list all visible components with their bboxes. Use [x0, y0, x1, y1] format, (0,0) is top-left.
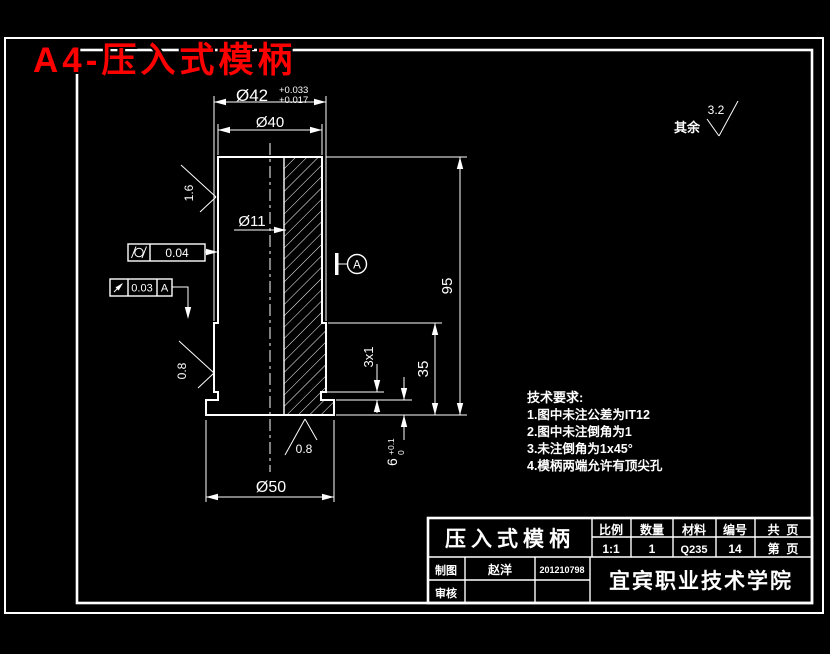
datum-a-symbol: A: [335, 253, 367, 275]
dim-h6-tol-lower: 0: [396, 450, 406, 455]
dim-arrow: [432, 403, 438, 415]
header-material: 材料: [681, 522, 706, 537]
header-total-pages: 共 页: [768, 522, 799, 537]
dim-d42-tol-lower: +0.017: [279, 95, 308, 106]
gdt-runout-frame: 0.03 A: [110, 279, 191, 319]
tech-requirement-item: 1.图中未注公差为IT12: [527, 407, 650, 422]
dim-arrow: [401, 415, 407, 427]
dim-d42-label: Ø42: [236, 86, 268, 105]
dim-h35: 35: [328, 323, 442, 415]
dim-h95: 95: [326, 157, 467, 415]
dim-arrow: [310, 127, 322, 133]
tech-requirements-title: 技术要求:: [527, 390, 583, 405]
dim-d40-label: Ø40: [256, 114, 284, 131]
dim-h6-tol-upper: +0.1: [386, 438, 396, 455]
leader-arrow: [185, 307, 191, 319]
header-quantity: 数量: [640, 522, 664, 537]
dim-arrow: [432, 323, 438, 335]
dim-arrow: [322, 494, 334, 500]
value-scale: 1:1: [602, 542, 620, 556]
roughness-side-upper: 1.6: [181, 165, 216, 212]
dim-d11: Ø11: [234, 213, 286, 233]
roughness-side-lower-value: 0.8: [175, 362, 189, 379]
value-material: Q235: [681, 544, 708, 556]
value-page: 第 页: [768, 541, 799, 556]
roughness-side-upper-value: 1.6: [182, 184, 196, 201]
roughness-general-value: 3.2: [708, 103, 725, 117]
gdt-runout-value: 0.03: [131, 283, 152, 295]
part-view: [206, 143, 334, 472]
dim-arrow: [374, 400, 380, 412]
dim-d11-label: Ø11: [238, 213, 265, 230]
dim-arrow: [374, 380, 380, 392]
value-quantity: 1: [649, 542, 656, 556]
roughness-bottom-value: 0.8: [296, 442, 313, 456]
header-scale: 比例: [599, 522, 623, 537]
dim-arrow: [457, 403, 463, 415]
title-block-part-name: 压入式模柄: [445, 527, 575, 551]
value-drawn-number: 201210798: [539, 565, 584, 575]
dim-arrow: [401, 388, 407, 400]
runout-icon: [114, 281, 125, 292]
dim-groove-label: 3x1: [361, 347, 376, 368]
header-number: 编号: [722, 522, 747, 537]
tech-requirement-item: 4.模柄两端允许有顶尖孔: [527, 458, 663, 473]
dim-arrow: [214, 99, 226, 105]
tech-requirements: 技术要求: 1.图中未注公差为IT12 2.图中未注倒角为1 3.未注倒角为1x…: [527, 390, 663, 473]
dim-arrow: [206, 494, 218, 500]
tech-requirement-item: 3.未注倒角为1x45°: [527, 441, 633, 456]
gdt-cylindricity-value: 0.04: [165, 246, 189, 260]
datum-bar: [335, 253, 339, 275]
roughness-general: 其余 3.2: [674, 101, 738, 136]
roughness-side-lower: 0.8: [175, 341, 214, 388]
page-title: A4-压入式模柄: [33, 41, 296, 80]
dim-arrow: [218, 127, 230, 133]
inner-frame: [77, 50, 812, 603]
dim-arrow: [314, 99, 326, 105]
cylindricity-icon: [132, 247, 147, 259]
datum-a-label: A: [353, 260, 361, 272]
roughness-others-label: 其余: [674, 120, 701, 135]
value-number: 14: [728, 542, 742, 556]
dim-h6-label: 6: [384, 458, 400, 466]
dim-d50-label: Ø50: [256, 479, 286, 496]
dim-arrow: [457, 157, 463, 169]
title-block: 压入式模柄 比例 数量 材料 编号 共 页 1:1 1 Q235 14 第 页 …: [428, 518, 812, 603]
label-drawn-by: 制图: [435, 563, 457, 577]
gdt-runout-datum: A: [161, 283, 169, 295]
label-checked-by: 审核: [435, 586, 457, 600]
gdt-cylindricity-frame: 0.04: [128, 244, 218, 261]
cad-drawing-screenshot: A4-压入式模柄 Ø42 +0.033 +0.017 Ø40 Ø11: [0, 0, 830, 654]
roughness-bottom: 0.8: [285, 419, 317, 456]
dim-h95-label: 95: [439, 278, 456, 295]
drawing-sheet: A4-压入式模柄 Ø42 +0.033 +0.017 Ø40 Ø11: [0, 0, 830, 654]
dim-h6: 6 +0.1 0: [384, 377, 407, 466]
organization-name: 宜宾职业技术学院: [609, 569, 793, 593]
dim-h35-label: 35: [415, 361, 432, 378]
dim-groove: 3x1: [324, 347, 412, 413]
value-drawn-by: 赵洋: [487, 562, 512, 577]
leader-arrow: [206, 249, 218, 255]
tech-requirement-item: 2.图中未注倒角为1: [527, 424, 632, 439]
